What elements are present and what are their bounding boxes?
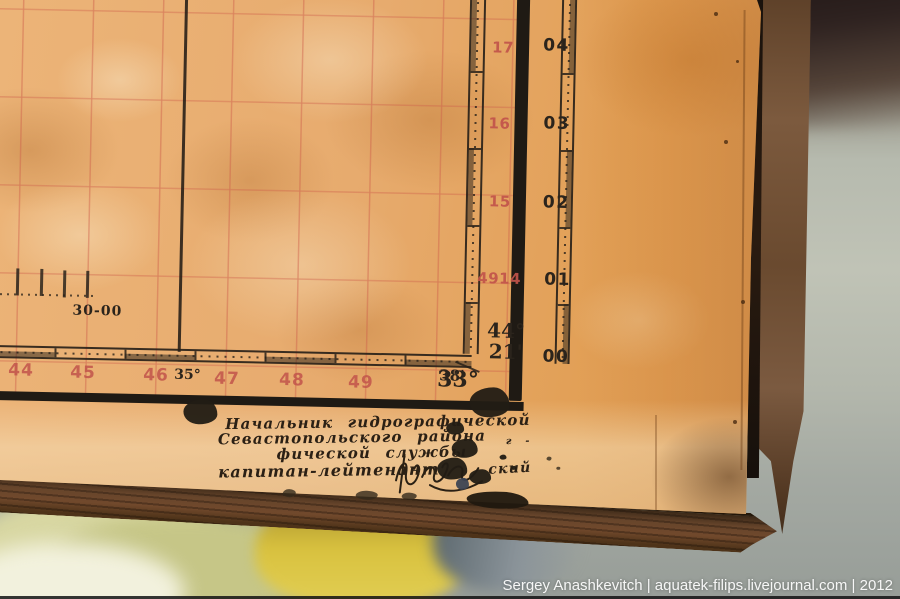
ink-speck [499, 455, 506, 460]
corner-latitude-degrees: 44° [487, 320, 525, 341]
bottom-grid-label: 44 [8, 362, 34, 380]
handwriting-small-mark: г - [506, 437, 531, 447]
ink-blob [469, 469, 491, 484]
lat-scale-label: 17 [492, 40, 514, 55]
ink-blob [183, 399, 218, 425]
bottom-grid-label: 45 [70, 365, 96, 383]
ink-smudge [466, 490, 529, 510]
ink-blob [437, 457, 467, 480]
stain [355, 490, 377, 500]
bottom-grid-label: 49 [348, 374, 374, 392]
photographer-watermark: Sergey Anashkevitch | aquatek-filips.liv… [502, 577, 893, 594]
ink-blob [469, 387, 510, 418]
lat-scale-label: 16 [488, 116, 510, 131]
bottom-grid-label: 48 [279, 372, 305, 390]
minute-scale-label: 00 [542, 348, 569, 366]
lat-scale-label: 15 [489, 194, 511, 209]
bottom-grid-label: 47 [214, 371, 240, 389]
ink-speck [511, 466, 516, 470]
stain [546, 456, 551, 460]
chart-markings: 17 16 15 4914 04 03 02 01 00 44° 21' 33°… [0, 0, 900, 599]
grid-reference-number: 30-00 [72, 304, 122, 319]
blue-ink-dot [456, 478, 469, 490]
corner-longitude-minutes: 38' [439, 368, 465, 384]
ink-blob [452, 439, 478, 459]
corner-latitude-minutes: 21' [489, 341, 523, 362]
stain [402, 492, 417, 500]
bottom-longitude-label: 35° [174, 368, 201, 383]
bottom-grid-label: 46 [143, 367, 169, 385]
minute-scale-label: 01 [544, 271, 571, 289]
photo-of-nautical-chart-corner: 17 16 15 4914 04 03 02 01 00 44° 21' 33°… [0, 0, 900, 599]
stain [556, 467, 560, 470]
lat-scale-label: 4914 [477, 271, 521, 287]
stain [283, 489, 296, 498]
minute-scale-label: 03 [543, 115, 570, 133]
minute-scale-label: 02 [543, 194, 570, 212]
handwriting-fragment: ский [488, 461, 532, 477]
minute-scale-label: 04 [543, 37, 570, 55]
ink-blob [446, 421, 464, 434]
